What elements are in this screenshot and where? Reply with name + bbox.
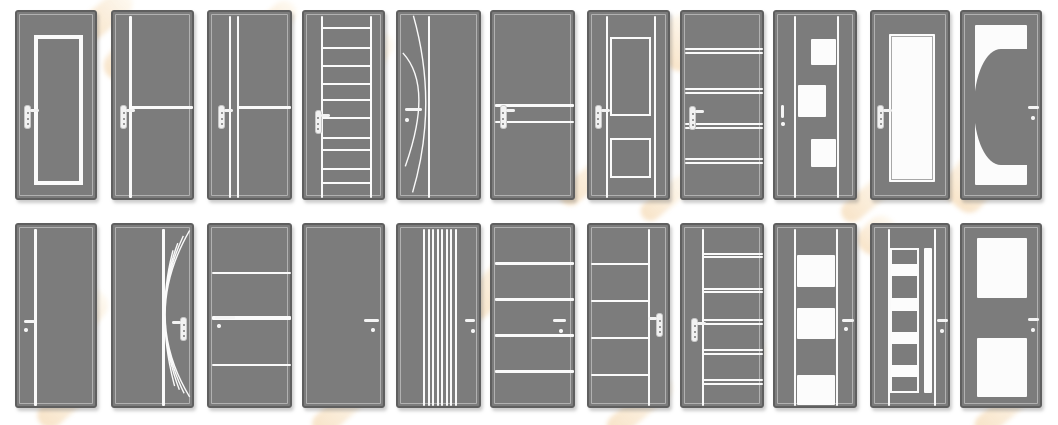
door-handle-knob [371, 328, 375, 332]
door-vertical-line [455, 229, 457, 407]
handle-lever-bar [321, 114, 330, 117]
door-horizontal-line [322, 168, 371, 170]
handle-plate-keyhole [692, 113, 694, 115]
door-vertical-line [654, 16, 656, 198]
door-horizontal-line [212, 364, 292, 366]
handle-plate-keyhole [123, 118, 125, 120]
handle-plate-keyhole [183, 324, 185, 326]
door-horizontal-line [591, 337, 648, 339]
door-framed-inset-panel [15, 10, 97, 200]
handle-lever-bar [506, 109, 515, 112]
door-handle-knob [471, 329, 475, 333]
handle-plate-keyhole [502, 123, 504, 125]
door-horizontal-line [238, 106, 291, 109]
door-horizontal-line [703, 288, 763, 290]
door-horizontal-line [685, 162, 764, 164]
door-horizontal-line [322, 27, 371, 29]
door-vertical-stripes [396, 223, 481, 408]
door-horizontal-line [591, 263, 648, 265]
handle-plate-keyhole [502, 118, 504, 120]
door-horizontal-line [685, 92, 764, 94]
door-vertical-line [321, 16, 323, 198]
door-handle-lever [553, 319, 566, 322]
door-horizontal-line [322, 137, 371, 139]
handle-plate-keyhole [183, 330, 185, 332]
door-four-hlines [490, 223, 575, 408]
door-horizontal-line [685, 88, 764, 90]
door-right-vline-four-hlines [587, 223, 670, 408]
door-center-glass-column [773, 223, 857, 408]
door-handle-lock-plate [120, 105, 127, 129]
door-glass-panel [924, 248, 932, 393]
door-double-mid-hline [490, 10, 575, 200]
door-vertical-line [432, 229, 434, 407]
door-fan-curves [111, 223, 194, 408]
door-handle-lock-plate [315, 110, 322, 134]
door-glass-panel [797, 375, 836, 405]
door-handle-vertical-lever [781, 105, 784, 118]
door-handle-lock-plate [218, 105, 225, 129]
handle-plate-keyhole [880, 123, 882, 125]
door-glass-panel [891, 264, 919, 276]
door-horizontal-line [495, 334, 575, 337]
door-handle-lock-plate [500, 105, 507, 129]
door-handle-lock-plate [877, 105, 884, 129]
door-horizontal-line [591, 374, 648, 376]
door-horizontal-line [703, 323, 763, 325]
door-horizontal-line [322, 182, 371, 184]
door-handle-knob [844, 327, 848, 331]
door-handle-lock-plate [595, 105, 602, 129]
door-horizontal-line [703, 379, 763, 381]
handle-lever-bar [172, 321, 181, 324]
handle-plate-keyhole [221, 118, 223, 120]
door-vertical-line [446, 229, 448, 407]
handle-plate-keyhole [659, 326, 661, 328]
handle-plate-keyhole [27, 118, 29, 120]
door-inner-outline [591, 227, 666, 404]
door-horizontal-line [322, 65, 371, 67]
door-horizontal-line [322, 149, 371, 151]
handle-lever-bar [126, 109, 135, 112]
door-vertical-line [794, 229, 796, 407]
door-four-double-hlines [680, 10, 764, 200]
door-glass-panel [811, 139, 836, 168]
door-handle-lever [364, 319, 379, 322]
handle-lever-bar [601, 109, 610, 112]
door-horizontal-line [495, 262, 575, 265]
handle-plate-keyhole [597, 112, 599, 114]
door-glass-panel [889, 34, 935, 182]
door-handle-lever [24, 320, 35, 323]
door-vertical-line [441, 229, 443, 407]
handle-plate-keyhole [659, 320, 661, 322]
door-half-circle-glass [960, 10, 1042, 200]
handle-lever-bar [695, 110, 704, 113]
door-handle-lever [465, 319, 475, 322]
handle-lever-bar [30, 109, 39, 112]
handle-plate-keyhole [123, 112, 125, 114]
handle-plate-keyhole [221, 112, 223, 114]
handle-plate-keyhole [123, 123, 125, 125]
door-horizontal-line [212, 272, 292, 274]
handle-plate-keyhole [659, 331, 661, 333]
door-handle-lock-plate [691, 318, 698, 342]
door-horizontal-line [685, 52, 764, 54]
door-handle-lever [842, 319, 854, 322]
handle-plate-body [500, 105, 507, 129]
handle-plate-keyhole [880, 112, 882, 114]
door-vertical-line [34, 229, 37, 407]
door-ladder-column-with-strip [870, 223, 950, 408]
door-horizontal-line [322, 99, 371, 101]
door-handle-lock-plate [656, 313, 663, 337]
door-ladder [302, 10, 385, 200]
door-glass-panel [891, 332, 919, 344]
door-glass-panel [891, 298, 919, 310]
door-handle-knob [1031, 328, 1035, 332]
handle-plate-keyhole [27, 123, 29, 125]
handle-plate-keyhole [27, 112, 29, 114]
door-vertical-line [934, 229, 936, 407]
handle-lever-bar [697, 322, 706, 325]
handle-plate-keyhole [221, 123, 223, 125]
door-halfdisc-overlay [974, 49, 1028, 165]
door-plain [302, 223, 385, 408]
door-full-glass [870, 10, 950, 200]
door-inner-outline [19, 227, 93, 404]
door-vertical-line [836, 229, 838, 407]
door-handle-knob [559, 329, 563, 333]
door-checkered-squares [773, 10, 857, 200]
door-glass-panel [811, 39, 836, 66]
handle-plate-keyhole [692, 124, 694, 126]
door-vertical-line [450, 229, 452, 407]
handle-plate-keyhole [694, 336, 696, 338]
door-glass-panel [797, 308, 836, 339]
door-horizontal-line [322, 83, 371, 85]
door-handle-lever [405, 108, 422, 111]
door-horizontal-line [703, 291, 763, 293]
handle-plate-keyhole [597, 123, 599, 125]
door-frame-outline [610, 37, 652, 117]
handle-lever-bar [224, 109, 233, 112]
door-horizontal-line [495, 298, 575, 301]
door-three-hlines [207, 223, 292, 408]
door-horizontal-line [703, 253, 763, 255]
door-horizontal-line [685, 158, 764, 160]
door-vertical-line [370, 16, 372, 198]
door-curve-inlay [398, 12, 479, 198]
handle-lever-bar [883, 109, 892, 112]
door-vertical-line [794, 16, 796, 198]
door-horizontal-line [322, 117, 371, 119]
handle-plate-body [180, 317, 187, 341]
door-horizontal-line [591, 300, 648, 302]
door-handle-knob [24, 328, 28, 332]
door-handle-lever [1028, 106, 1038, 109]
door-glass-panel [798, 85, 826, 117]
handle-plate-keyhole [597, 118, 599, 120]
door-inner-outline [306, 227, 381, 404]
door-handle-knob [1031, 116, 1035, 120]
door-glass-panel [977, 238, 1027, 298]
door-single-vline [15, 223, 97, 408]
door-horizontal-line [703, 353, 763, 355]
handle-plate-keyhole [880, 118, 882, 120]
door-glass-panel [891, 365, 919, 377]
door-handle-lever [937, 319, 949, 322]
door-handle-lock-plate [24, 105, 31, 129]
door-vertical-line [423, 229, 425, 407]
door-handle-lock-plate [689, 106, 696, 130]
door-vline-with-mid-hline [111, 10, 194, 200]
door-vertical-line [428, 229, 430, 407]
handle-plate-keyhole [183, 335, 185, 337]
door-horizontal-line [495, 370, 575, 373]
door-handle-lever [1028, 318, 1039, 321]
door-inner-outline [494, 227, 571, 404]
door-horizontal-line [685, 48, 764, 50]
door-horizontal-line [130, 106, 193, 109]
door-horizontal-line [703, 256, 763, 258]
door-arc-curves [396, 10, 481, 200]
door-vertical-line [437, 229, 439, 407]
door-horizontal-line [703, 319, 763, 321]
handle-plate-keyhole [502, 112, 504, 114]
door-horizontal-line [703, 383, 763, 385]
door-vertical-line [837, 16, 839, 198]
handle-plate-body [595, 105, 602, 129]
door-two-glass-panels [960, 223, 1042, 408]
door-horizontal-line [322, 47, 371, 49]
handle-plate-keyhole [694, 325, 696, 327]
door-curve-inlay [113, 225, 192, 406]
handle-plate-body [656, 313, 663, 337]
door-vertical-line [229, 16, 231, 198]
door-frame-outline [610, 138, 652, 178]
door-frame-outline [34, 35, 83, 185]
door-vertical-line [606, 16, 608, 198]
handle-plate-keyhole [694, 331, 696, 333]
door-handle-knob [940, 329, 944, 333]
handle-plate-keyhole [692, 119, 694, 121]
door-two-framed-panels [587, 10, 670, 200]
door-horizontal-line [703, 349, 763, 351]
handle-lever-bar [648, 317, 657, 320]
door-handle-knob [781, 122, 785, 126]
door-glass-panel [977, 338, 1027, 396]
door-design-catalog [0, 0, 1058, 425]
door-handle-lock-plate [180, 317, 187, 341]
door-handle-lever [215, 316, 234, 319]
door-left-vline-five-double-hlines [680, 223, 764, 408]
door-handle-knob [217, 324, 221, 328]
door-double-vline-with-mid-hline [207, 10, 292, 200]
door-glass-panel [797, 255, 836, 287]
